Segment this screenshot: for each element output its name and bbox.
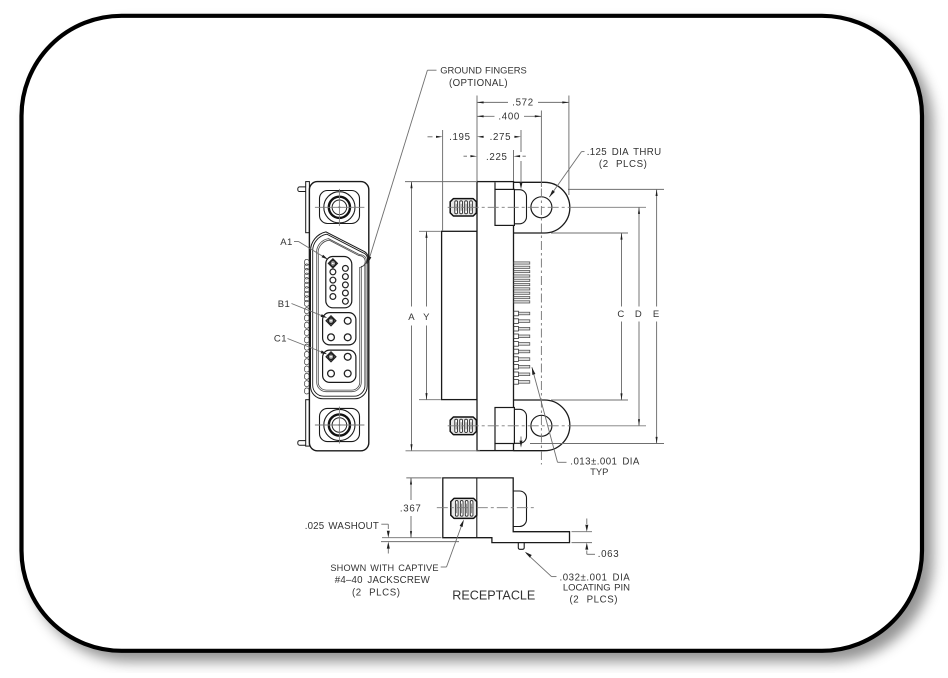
svg-text:.572: .572 — [512, 98, 534, 109]
svg-text:(2 PLCS): (2 PLCS) — [599, 159, 648, 170]
svg-text:B1: B1 — [278, 299, 291, 310]
svg-text:.063: .063 — [598, 549, 620, 560]
svg-text:(OPTIONAL): (OPTIONAL) — [449, 78, 508, 89]
svg-text:.025 WASHOUT: .025 WASHOUT — [305, 521, 379, 532]
svg-text:C: C — [617, 309, 624, 320]
svg-text:.400: .400 — [498, 112, 520, 123]
svg-text:#4–40 JACKSCREW: #4–40 JACKSCREW — [335, 575, 431, 586]
svg-text:D: D — [635, 309, 642, 320]
svg-text:GROUND FINGERS: GROUND FINGERS — [440, 65, 527, 76]
svg-text:E: E — [653, 309, 660, 320]
svg-text:.125 DIA THRU: .125 DIA THRU — [587, 147, 662, 158]
svg-text:TYP: TYP — [590, 466, 608, 477]
svg-text:LOCATING PIN: LOCATING PIN — [563, 583, 630, 594]
svg-text:(2 PLCS): (2 PLCS) — [569, 594, 618, 605]
svg-text:C1: C1 — [274, 334, 287, 345]
svg-text:.275: .275 — [490, 132, 512, 143]
svg-text:RECEPTACLE: RECEPTACLE — [452, 588, 535, 602]
svg-text:SHOWN WITH CAPTIVE: SHOWN WITH CAPTIVE — [330, 563, 438, 573]
svg-text:Y: Y — [423, 312, 430, 323]
svg-text:A1: A1 — [280, 237, 293, 248]
svg-text:A: A — [408, 312, 415, 323]
svg-text:.195: .195 — [449, 132, 471, 143]
svg-text:.367: .367 — [400, 503, 422, 514]
svg-text:(2 PLCS): (2 PLCS) — [352, 587, 401, 598]
svg-text:.225: .225 — [486, 152, 508, 163]
